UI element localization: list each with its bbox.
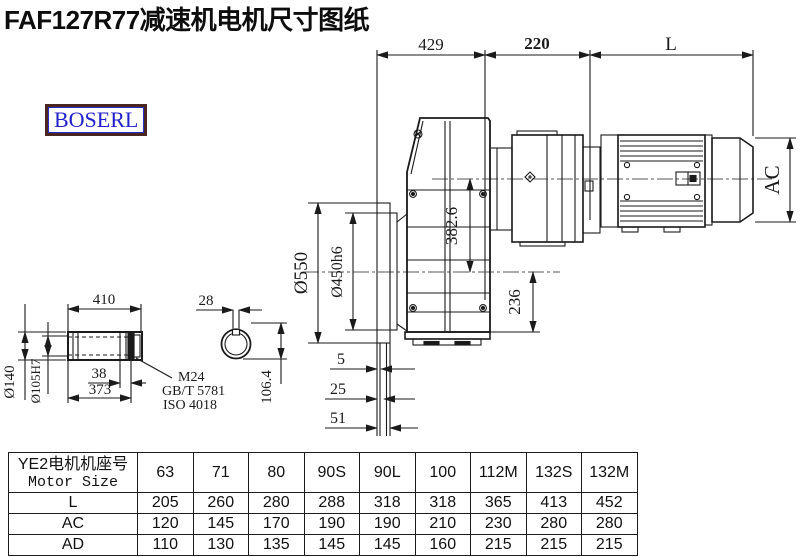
dim-spigot: Ø450h6	[329, 246, 346, 298]
col-header: 90S	[304, 453, 360, 493]
col-header: 80	[249, 453, 305, 493]
value-cell: 215	[471, 535, 527, 556]
value-cell: 145	[193, 514, 249, 535]
table-corner-header: YE2电机机座号 Motor Size	[9, 453, 138, 493]
dim-flange-od: Ø550	[291, 252, 312, 294]
technical-drawing: 429 220 L Ø550 Ø450h6 382.6 236 AC 5 25 …	[0, 32, 800, 452]
table-row-AC: AC 120 145 170 190 190 210 230 280 280	[9, 514, 638, 535]
col-header: 112M	[471, 453, 527, 493]
col-header: 71	[193, 453, 249, 493]
dim-step-5: 5	[337, 351, 345, 368]
label-standard-gb: GB/T 5781	[162, 384, 225, 399]
motor-size-table: YE2电机机座号 Motor Size 63 71 80 90S 90L 100…	[8, 452, 638, 556]
dim-bore-dia: Ø105H7	[28, 358, 43, 403]
value-cell: 190	[304, 514, 360, 535]
value-cell: 160	[415, 535, 471, 556]
value-cell: 215	[582, 535, 638, 556]
value-cell: 210	[415, 514, 471, 535]
value-cell: 452	[582, 493, 638, 514]
value-cell: 280	[526, 514, 582, 535]
dim-key-width: 28	[199, 293, 214, 309]
centerlines	[303, 179, 772, 272]
value-cell: 318	[360, 493, 416, 514]
value-cell: 215	[526, 535, 582, 556]
label-thread: M24	[178, 370, 204, 385]
value-cell: 230	[471, 514, 527, 535]
col-header: 132S	[526, 453, 582, 493]
value-cell: 145	[304, 535, 360, 556]
label-standard-iso: ISO 4018	[163, 398, 217, 413]
value-cell: 190	[360, 514, 416, 535]
dim-bore-length: 373	[89, 382, 112, 398]
col-header: 132M	[582, 453, 638, 493]
dim-220: 220	[524, 34, 550, 53]
row-label: AC	[9, 514, 138, 535]
value-cell: 288	[304, 493, 360, 514]
dim-L: L	[665, 34, 677, 55]
col-header: 63	[138, 453, 194, 493]
col-header: 90L	[360, 453, 416, 493]
dim-shaft-length: 410	[93, 292, 116, 308]
value-cell: 365	[471, 493, 527, 514]
value-cell: 120	[138, 514, 194, 535]
value-cell: 205	[138, 493, 194, 514]
table-header-en: Motor Size	[9, 474, 137, 491]
input-adapter	[490, 131, 600, 246]
value-cell: 130	[193, 535, 249, 556]
table-header-cn: YE2电机机座号	[9, 455, 137, 474]
dim-key-depth: 106.4	[259, 370, 275, 404]
value-cell: 280	[249, 493, 305, 514]
col-header: 100	[415, 453, 471, 493]
value-cell: 135	[249, 535, 305, 556]
value-cell: 260	[193, 493, 249, 514]
value-cell: 280	[582, 514, 638, 535]
value-cell: 110	[138, 535, 194, 556]
row-label: L	[9, 493, 138, 514]
value-cell: 170	[249, 514, 305, 535]
dim-axis-offset: 382.6	[442, 207, 461, 245]
dim-shaft-od: Ø140	[2, 365, 18, 398]
output-flange	[377, 203, 407, 436]
dim-end-step: 38	[92, 366, 107, 382]
value-cell: 145	[360, 535, 416, 556]
top-extension-lines	[377, 50, 753, 300]
value-cell: 318	[415, 493, 471, 514]
row-label: AD	[9, 535, 138, 556]
flange-dimensions	[308, 203, 390, 343]
dim-step-51: 51	[330, 410, 346, 427]
value-cell: 413	[526, 493, 582, 514]
table-row-AD: AD 110 130 135 145 145 160 215 215 215	[9, 535, 638, 556]
dim-429: 429	[418, 35, 444, 54]
dim-AC: AC	[760, 165, 784, 194]
motor	[601, 135, 753, 232]
dim-step-25: 25	[330, 381, 346, 398]
dim-base-height: 236	[505, 289, 524, 315]
table-row-L: L 205 260 280 288 318 318 365 413 452	[9, 493, 638, 514]
